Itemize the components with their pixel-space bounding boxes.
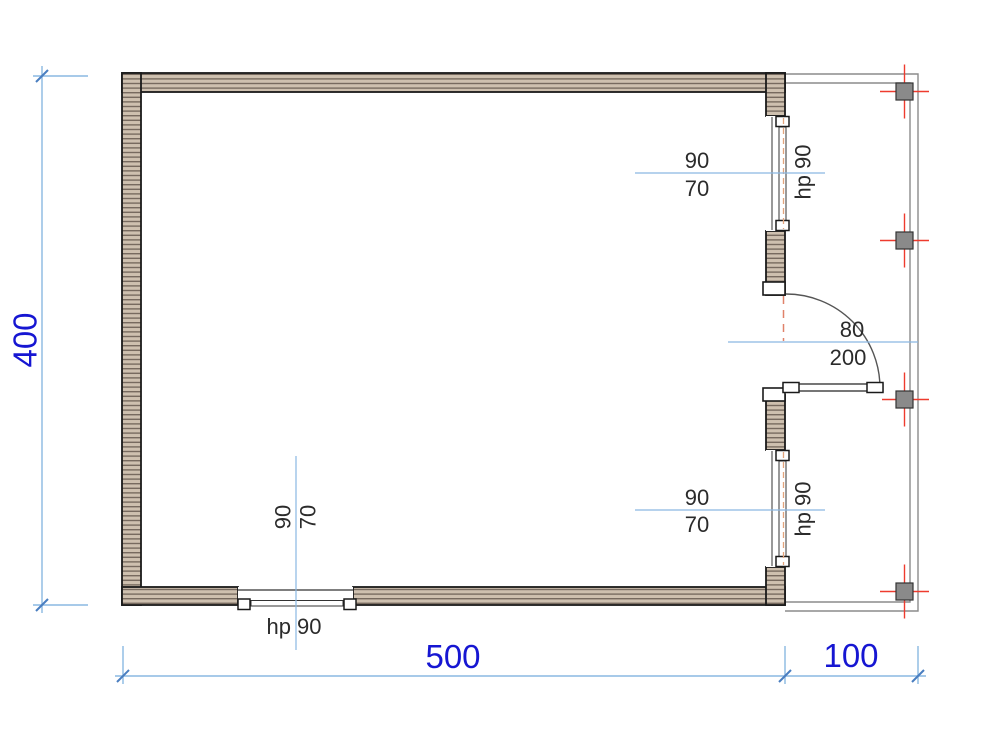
window-bottom-right <box>766 450 789 567</box>
dimension-bottom: 500 100 <box>115 637 926 684</box>
door-leaf-hinge-block <box>783 383 799 393</box>
door-jamb-upper <box>763 282 785 295</box>
floor-plan-drawing: 400 500 100 90 70 hp 90 80 200 90 70 hp … <box>0 0 1000 750</box>
window-bottom <box>238 587 356 610</box>
wall-right-segment-1 <box>766 73 785 116</box>
window-bottom-right-jamb-bottom <box>776 557 789 567</box>
door-swing-arc <box>786 294 880 388</box>
wall-right-segment-3 <box>766 395 785 450</box>
dimension-overall-height: 400 <box>7 66 89 613</box>
annotation-door: 80 200 <box>728 317 918 370</box>
dim-overall-width-label: 500 <box>425 638 480 675</box>
window-top-right-glazing <box>779 127 786 222</box>
window-top-right-sill-label: 70 <box>685 176 709 201</box>
wall-left <box>122 73 141 605</box>
dim-terrace-width-label: 100 <box>823 637 878 674</box>
wall-bottom-left-segment <box>122 587 238 605</box>
column-3-square <box>896 391 913 408</box>
window-top-right-parapet-label: hp 90 <box>791 144 816 199</box>
annotation-window-top-right: 90 70 hp 90 <box>635 144 825 201</box>
window-bottom-right-sill-label: 70 <box>685 512 709 537</box>
annotation-window-bottom: 90 70 hp 90 <box>266 456 321 650</box>
door-leaf-end-block <box>867 383 883 393</box>
column-2 <box>880 214 929 268</box>
window-bottom-right-glazing <box>779 461 786 557</box>
wall-bottom-right-segment <box>353 587 785 605</box>
column-1 <box>880 65 929 119</box>
window-bottom-sill-label: 70 <box>296 505 321 529</box>
window-bottom-parapet-label: hp 90 <box>266 614 321 639</box>
door-jamb-lower <box>763 388 785 401</box>
door-height-label: 200 <box>830 345 867 370</box>
door-width-label: 80 <box>840 317 864 342</box>
column-1-square <box>896 83 913 100</box>
window-bottom-glazing <box>251 601 343 607</box>
window-bottom-right-size-label: 90 <box>685 485 709 510</box>
wall-right-segment-4 <box>766 567 785 605</box>
window-top-right-jamb-bottom <box>776 221 789 231</box>
floor-plan-page: 400 500 100 90 70 hp 90 80 200 90 70 hp … <box>0 0 1000 750</box>
window-bottom-jamb-right <box>344 599 356 610</box>
wall-top <box>122 73 785 92</box>
window-bottom-right-jamb-top <box>776 451 789 461</box>
annotation-window-bottom-right: 90 70 hp 90 <box>635 481 825 537</box>
window-bottom-right-parapet-label: hp 90 <box>791 481 816 536</box>
column-2-square <box>896 232 913 249</box>
column-3 <box>882 373 929 427</box>
window-bottom-jamb-left <box>238 599 250 610</box>
window-top-right-jamb-top <box>776 117 789 127</box>
window-top-right-size-label: 90 <box>685 148 709 173</box>
dim-overall-height-label: 400 <box>7 312 44 367</box>
window-bottom-size-label: 90 <box>271 505 296 529</box>
column-4-square <box>896 583 913 600</box>
